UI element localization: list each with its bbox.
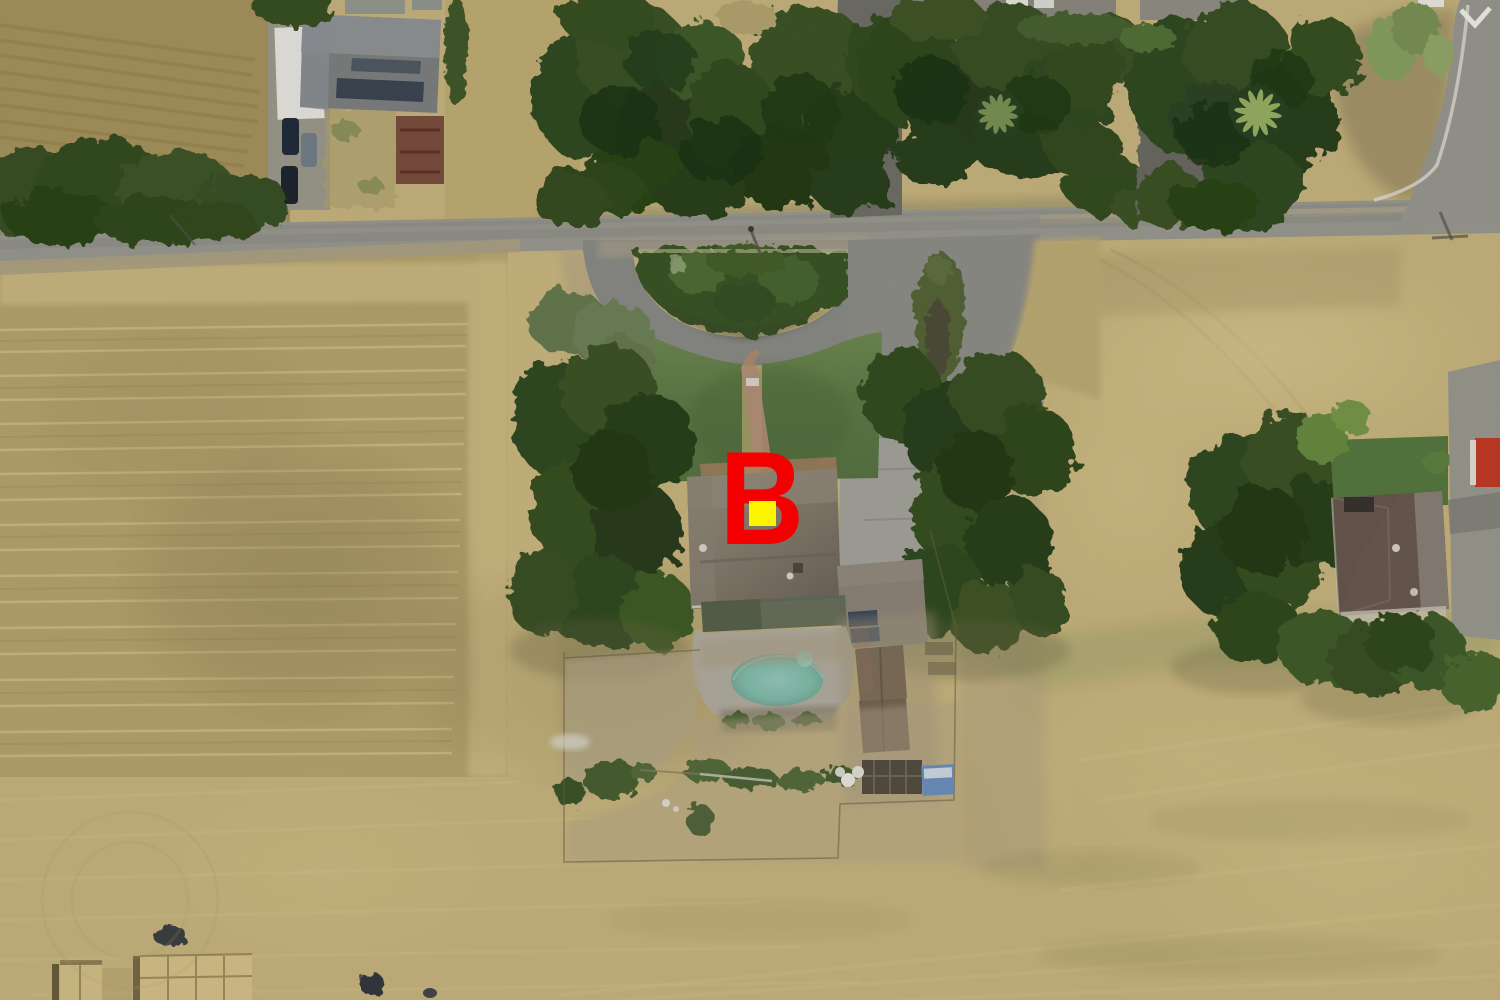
- svg-text:B: B: [720, 424, 805, 573]
